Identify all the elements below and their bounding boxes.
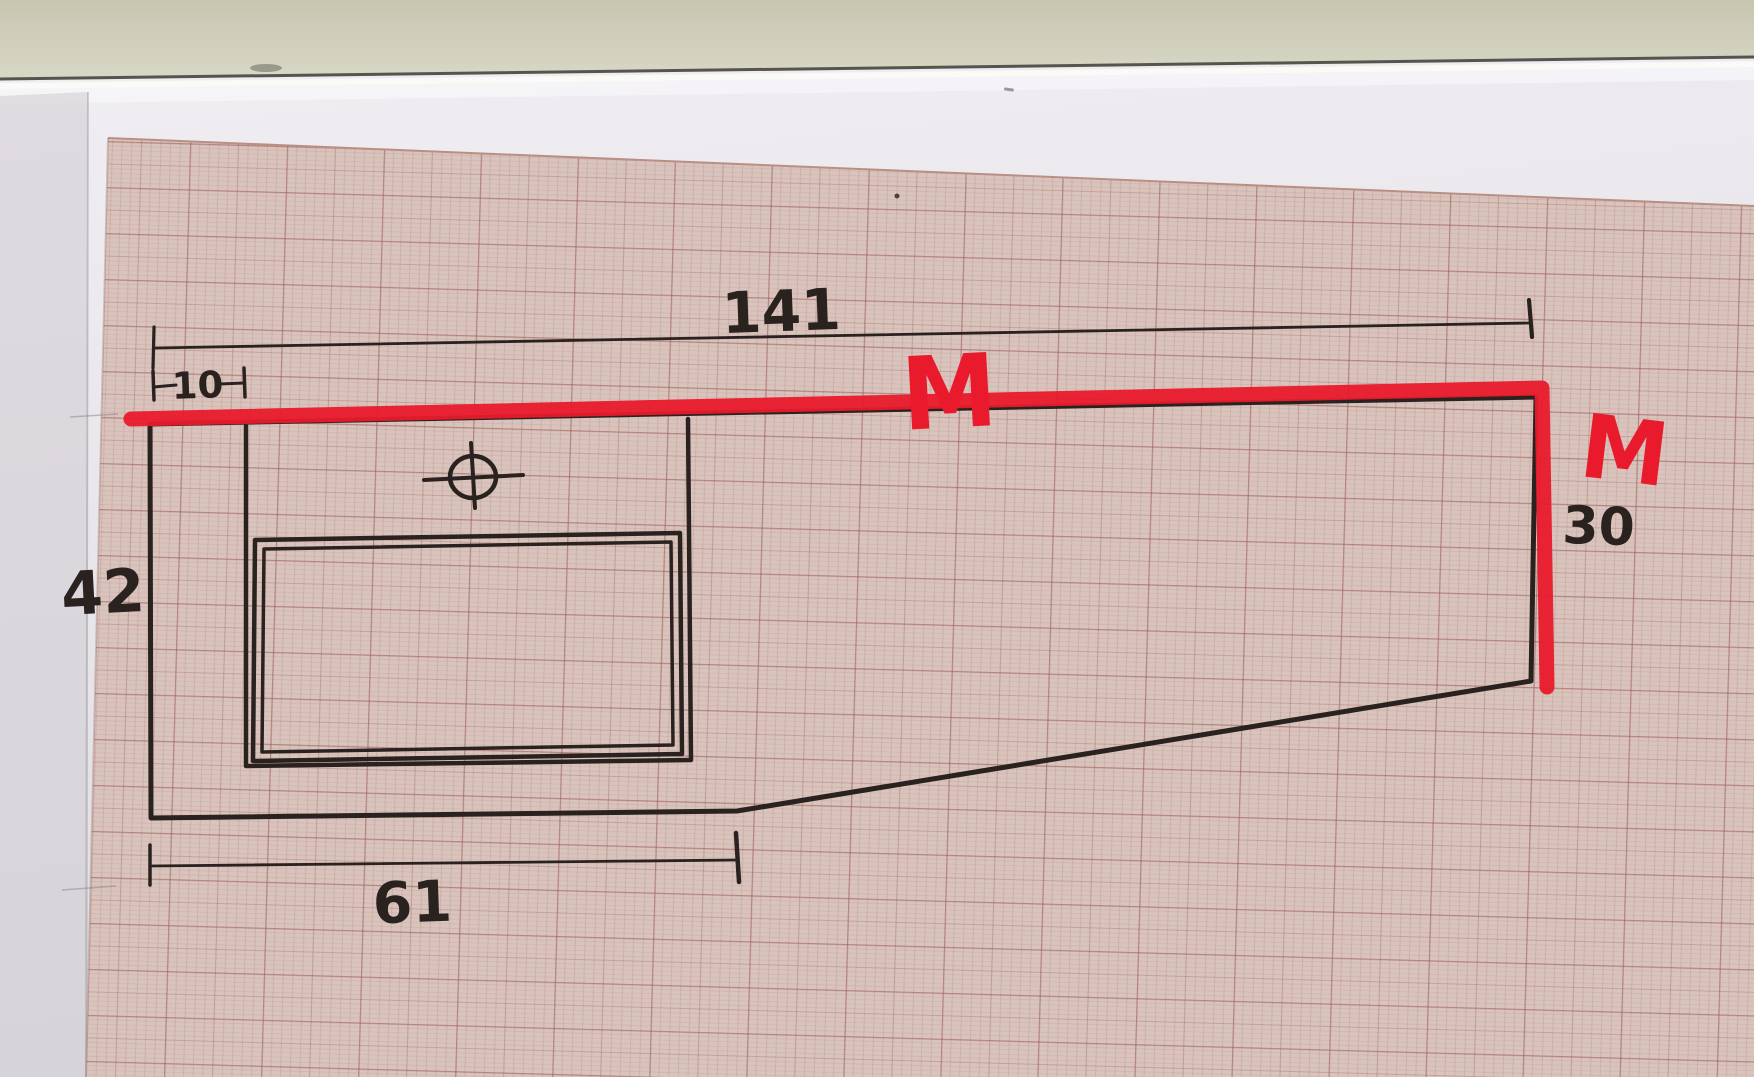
edge-smudge bbox=[250, 64, 282, 72]
dim-141-label: 141 bbox=[721, 277, 842, 347]
grid-sheet bbox=[86, 138, 1754, 1077]
red-m-top-label: M bbox=[899, 333, 1000, 455]
dim-30-label: 30 bbox=[1561, 496, 1635, 558]
sketch-canvas: 141 10 42 61 30 M M bbox=[0, 0, 1754, 1077]
dim-42-label: 42 bbox=[59, 556, 146, 630]
dim-10-tick-left bbox=[153, 371, 154, 400]
dim-10-bar-right bbox=[220, 383, 244, 384]
dim-10-label: 10 bbox=[171, 363, 224, 408]
dim-141-tick-left bbox=[153, 327, 154, 368]
red-m-right-label: M bbox=[1575, 394, 1674, 507]
dim-61-tick-right bbox=[736, 833, 739, 882]
paper-speck bbox=[895, 194, 900, 199]
photo-of-sketch: 141 10 42 61 30 M M bbox=[0, 0, 1754, 1077]
dim-61-label: 61 bbox=[372, 869, 454, 938]
dim-141-tick-right bbox=[1529, 300, 1532, 337]
